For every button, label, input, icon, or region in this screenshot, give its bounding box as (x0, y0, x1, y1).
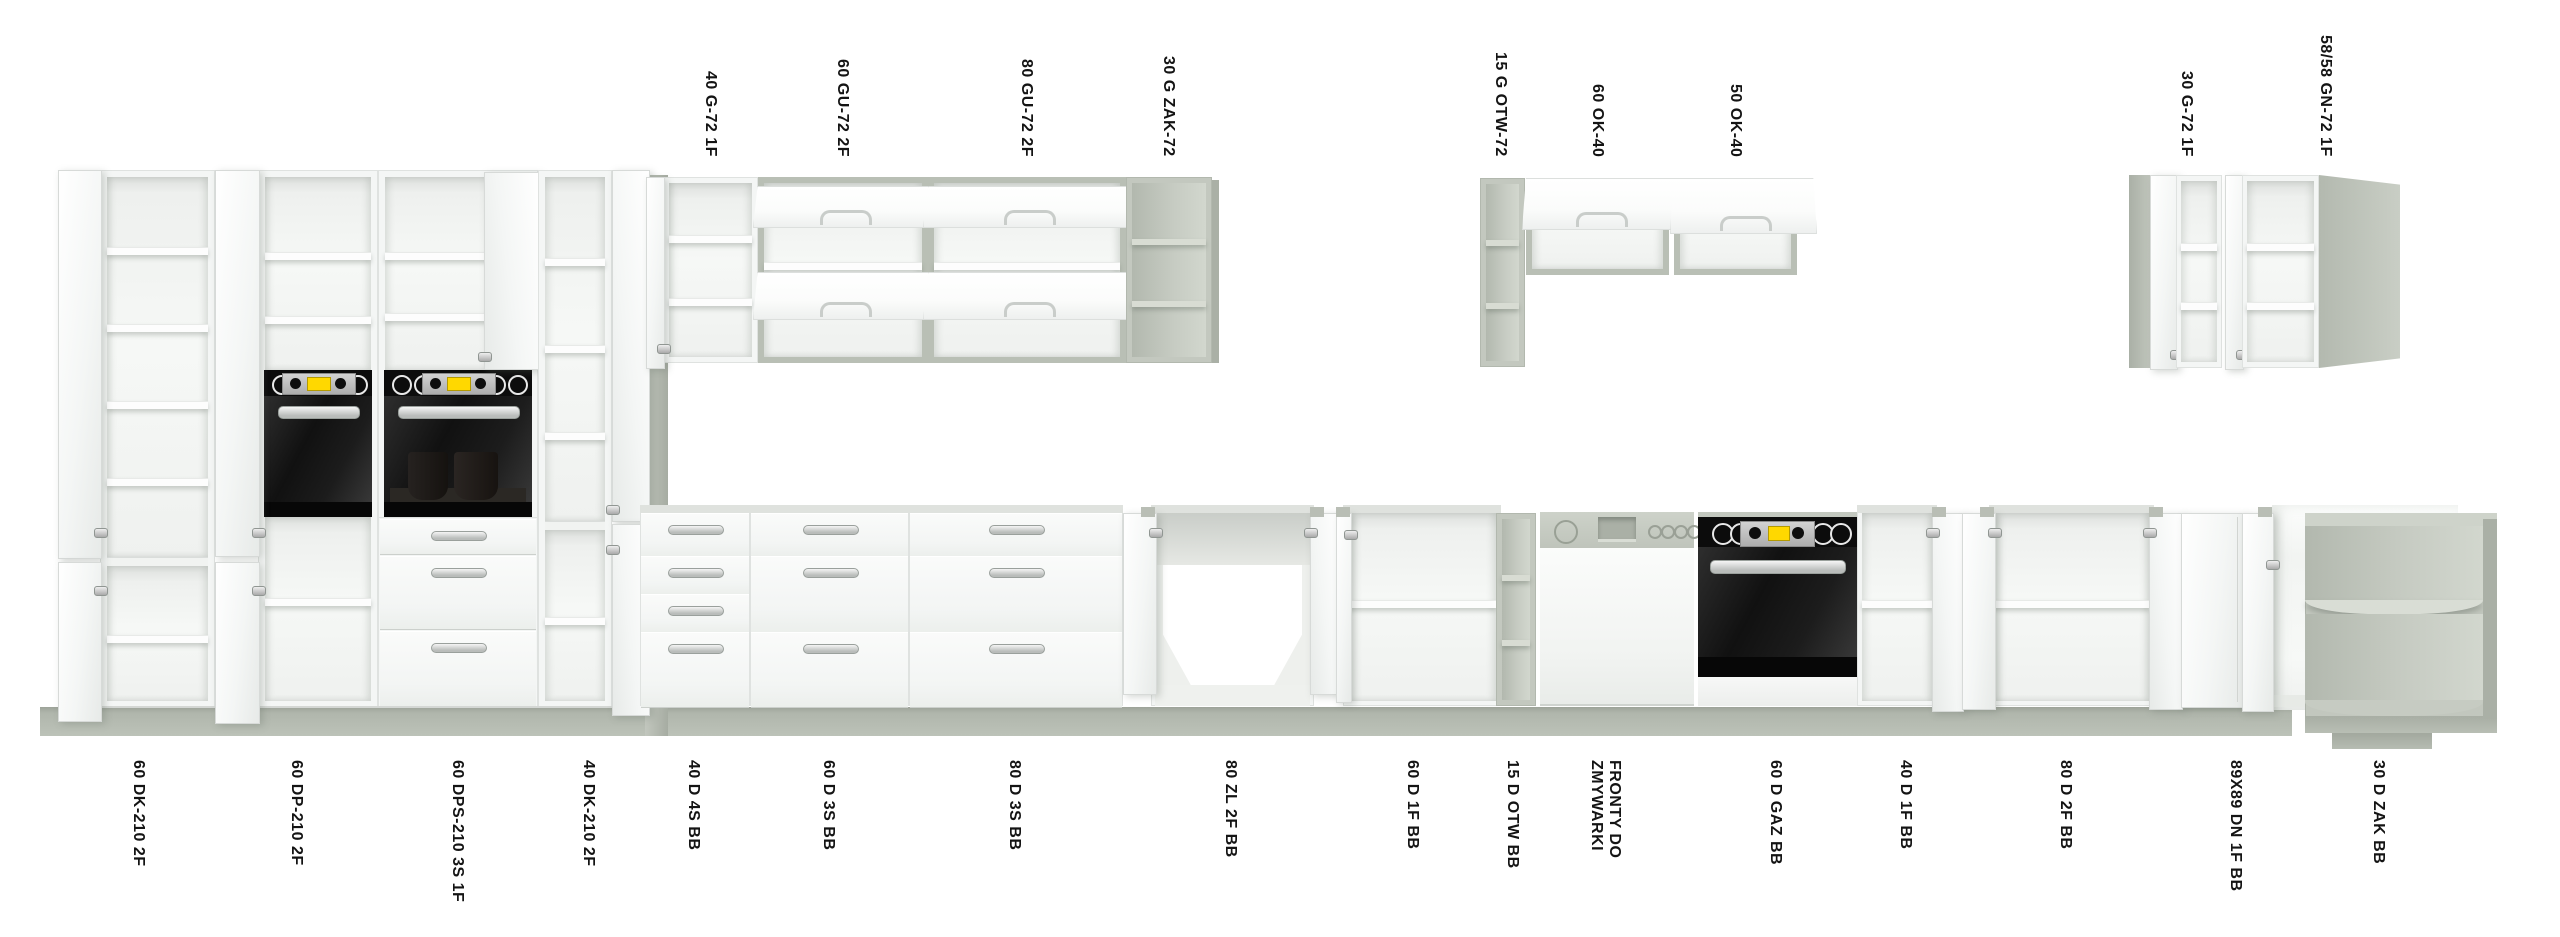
product-code-label-bottom: 60 D 1F BB (1403, 760, 1421, 849)
door-handle (252, 586, 266, 596)
dishwasher-dial-icon (1554, 520, 1578, 544)
oven-display (447, 377, 471, 391)
shelf (669, 235, 752, 243)
corner-cabinet-front (2181, 513, 2244, 708)
cabinet-interior (107, 566, 208, 701)
open-door-panel (2150, 175, 2178, 370)
shelf (545, 617, 605, 625)
side-panel (2483, 519, 2497, 719)
open-door-panel (2242, 513, 2274, 712)
open-shelf-compartment (1502, 581, 1530, 640)
product-code-label-top: 30 G ZAK-72 (1159, 56, 1177, 157)
open-shelf-compartment (2305, 526, 2483, 600)
door-handle (94, 528, 108, 538)
shelf (107, 247, 208, 255)
open-shelf-compartment (1486, 309, 1519, 361)
open-shelf-compartment (1132, 307, 1206, 357)
door-hinge-cap (1310, 507, 1324, 517)
oven-knob-icon (392, 375, 412, 395)
oven-handle (398, 406, 520, 419)
oven-knob-icon (508, 375, 528, 395)
corner-side-panel (2129, 175, 2150, 368)
open-door-panel (215, 170, 260, 557)
product-code-label-top: 30 G-72 1F (2177, 71, 2195, 157)
open-door-panel (484, 172, 540, 370)
product-code-label-bottom: 80 D 2F BB (2056, 760, 2074, 849)
oven-knob-icon (475, 378, 486, 389)
product-code-label-bottom: 60 D 3S BB (819, 760, 837, 850)
open-shelf-compartment (1132, 245, 1206, 301)
door-handle (1926, 528, 1940, 538)
shelf (2181, 243, 2217, 251)
oven-display (307, 377, 331, 391)
shelf (545, 345, 605, 353)
product-code-label-top: 80 GU-72 2F (1017, 59, 1035, 157)
drawer-handle (989, 644, 1045, 654)
cabinet-interior (545, 530, 605, 701)
product-code-label-bottom: 30 D ZAK BB (2369, 760, 2387, 864)
shelf (934, 262, 1120, 270)
product-code-label-bottom: 15 D OTW BB (1503, 760, 1521, 869)
carcass-top-band (640, 505, 750, 513)
shelf (2247, 243, 2314, 251)
drawer (641, 513, 749, 557)
shelf-top-face (2305, 513, 2497, 526)
product-code-label-top: 60 GU-72 2F (833, 59, 851, 157)
dishwasher-door (1540, 548, 1694, 704)
door-handle (2143, 528, 2157, 538)
product-code-label-bottom: 80 ZL 2F BB (1221, 760, 1239, 858)
cabinet-interior (2181, 181, 2217, 362)
sink-basin (1163, 565, 1302, 685)
open-shelf-board (1502, 575, 1530, 581)
open-door-panel (2149, 513, 2183, 710)
dishwasher-button-icon (1648, 525, 1662, 539)
oven-bottom-band (1698, 657, 1858, 677)
kitchen-cabinet-set-diagram: 40 G-72 1F60 GU-72 2F80 GU-72 2F30 G ZAK… (0, 0, 2560, 937)
oven-knob-icon (1792, 527, 1804, 539)
door-hinge-cap (2258, 507, 2272, 517)
shelf (1862, 600, 1932, 608)
flip-door-handle (1576, 212, 1628, 227)
oven-handle (278, 406, 360, 419)
door-handle (94, 586, 108, 596)
drawer-handle (803, 568, 859, 578)
product-code-label-bottom: 60 DPS-210 3S 1F (448, 760, 466, 902)
open-shelf-compartment (1502, 646, 1530, 700)
oven-knob-icon (335, 378, 346, 389)
cabinet-bottom-shadow (100, 706, 215, 708)
open-shelf-compartment (1486, 184, 1519, 240)
shelf (2181, 302, 2217, 310)
door-hinge-cap (1141, 507, 1155, 517)
sink-cabinet-floor (1155, 685, 1310, 706)
open-door-panel (58, 170, 102, 559)
shelf (107, 401, 208, 409)
cup (454, 452, 498, 500)
product-code-label-bottom: 80 D 3S BB (1005, 760, 1023, 850)
shelf (2247, 302, 2314, 310)
flip-door-handle (1720, 216, 1772, 231)
open-shelf-compartment (1486, 246, 1519, 303)
open-door-panel (1932, 513, 1964, 712)
oven-knob-icon (430, 378, 441, 389)
shelf (265, 252, 371, 260)
drawer-handle (431, 643, 487, 653)
shelf (265, 598, 371, 606)
dishwasher-button-icon (1661, 525, 1675, 539)
flip-door-handle (820, 302, 872, 317)
dishwasher-bottom-shadow (1540, 704, 1694, 706)
drawer-handle (668, 525, 724, 535)
product-code-label-top: 58/58 GN-72 1F (2316, 35, 2334, 157)
carcass-top-band (1857, 505, 1937, 513)
cabinet-bottom-shadow (258, 706, 378, 708)
product-code-label-bottom: 40 DK-210 2F (579, 760, 597, 867)
carcass-top-band (1989, 505, 2154, 513)
corner-side-panel (2319, 175, 2400, 368)
open-shelf-compartment (1502, 519, 1530, 575)
open-shelf-board (1486, 303, 1519, 309)
door-hinge-cap (2149, 507, 2163, 517)
product-code-label-top: 50 OK-40 (1726, 84, 1744, 157)
drawer (751, 513, 908, 557)
shelf (764, 262, 922, 270)
sink-top-shadow (1155, 513, 1310, 565)
drawer-handle (803, 525, 859, 535)
cabinet-interior (265, 517, 371, 701)
oven-knob-icon (1749, 527, 1761, 539)
cabinet-bottom-shadow (538, 706, 612, 708)
drawer-handle (668, 606, 724, 616)
shelf (545, 432, 605, 440)
carcass-top-band (750, 505, 909, 513)
door-handle (1988, 528, 2002, 538)
product-code-label-top: 60 OK-40 (1588, 84, 1606, 157)
drawer-handle (803, 644, 859, 654)
product-code-label-bottom: 40 D 4S BB (684, 760, 702, 850)
oven-bottom-band (264, 502, 372, 517)
oven-display (1768, 526, 1790, 541)
product-code-label-top: 15 G OTW-72 (1491, 52, 1509, 157)
flip-door-handle (1004, 210, 1056, 225)
open-shelf-board (1502, 640, 1530, 646)
door-handle (252, 528, 266, 538)
shelf (545, 258, 605, 266)
carcass-top-band (1343, 505, 1501, 513)
open-shelf-compartment (2305, 614, 2483, 700)
cabinet-interior (265, 177, 371, 370)
drawer-handle (989, 568, 1045, 578)
shelf (1994, 600, 2149, 608)
door-gap-line (2237, 517, 2238, 702)
door-handle (2266, 560, 2280, 570)
open-door-panel (1336, 513, 1352, 703)
cabinet-interior (2247, 181, 2314, 362)
oven-knob-icon (290, 378, 301, 389)
shelf (107, 324, 208, 332)
open-door-panel (1962, 513, 1996, 710)
drawer-handle (668, 568, 724, 578)
oven-bottom-band (384, 502, 532, 517)
open-shelf-board (1132, 301, 1206, 307)
product-code-label-bottom: FRONTY DO ZMYWARKI (1587, 760, 1623, 858)
product-code-label-top: 40 G-72 1F (701, 71, 719, 157)
drawer-handle (668, 644, 724, 654)
dishwasher-handle-recess (1598, 517, 1636, 542)
carcass-top-band (909, 505, 1123, 513)
shelf (1348, 600, 1496, 608)
dishwasher-button-icon (1674, 525, 1688, 539)
product-code-label-bottom: 60 DP-210 2F (287, 760, 305, 866)
oven-knob-icon (1830, 523, 1852, 545)
cabinet-interior (107, 177, 208, 557)
drawer-handle (989, 525, 1045, 535)
product-code-label-bottom: 89X89 DN 1F BB (2226, 760, 2244, 892)
product-code-label-bottom: 40 D 1F BB (1896, 760, 1914, 849)
open-door-panel (612, 170, 650, 522)
door-handle (478, 352, 492, 362)
carcass-top-band (1151, 505, 1314, 513)
door-handle (606, 505, 620, 515)
open-shelf-board (1132, 239, 1206, 245)
door-hinge-cap (1980, 507, 1994, 517)
flip-door-handle (820, 210, 872, 225)
door-hinge-cap (1336, 507, 1350, 517)
corner-plinth (2332, 733, 2432, 749)
oven-handle (1710, 560, 1846, 574)
open-shelf-board (1486, 240, 1519, 246)
product-code-label-bottom: 60 D GAZ BB (1766, 760, 1784, 865)
shelf (265, 316, 371, 324)
open-shelf-compartment (1132, 183, 1206, 239)
shelf-base-shadow (2305, 716, 2497, 733)
shelf (107, 478, 208, 486)
side-panel (1212, 180, 1219, 363)
open-door-panel (646, 177, 665, 369)
drawer-handle (431, 531, 487, 541)
drawer (910, 513, 1122, 557)
shelf (107, 635, 208, 643)
cabinet-interior (669, 183, 752, 357)
cabinet-bottom-shadow (378, 706, 538, 708)
door-handle (1304, 528, 1318, 538)
oven-drawer (1698, 677, 1858, 706)
product-code-label-bottom: 60 DK-210 2F (129, 760, 147, 867)
door-handle (1149, 528, 1163, 538)
door-handle (657, 344, 671, 354)
flip-door-handle (1004, 302, 1056, 317)
cup (408, 452, 448, 500)
open-door-panel (1123, 513, 1157, 695)
drawer-handle (431, 568, 487, 578)
door-handle (606, 545, 620, 555)
door-hinge-cap (1932, 507, 1946, 517)
door-handle (1344, 530, 1358, 540)
shelf (669, 298, 752, 306)
